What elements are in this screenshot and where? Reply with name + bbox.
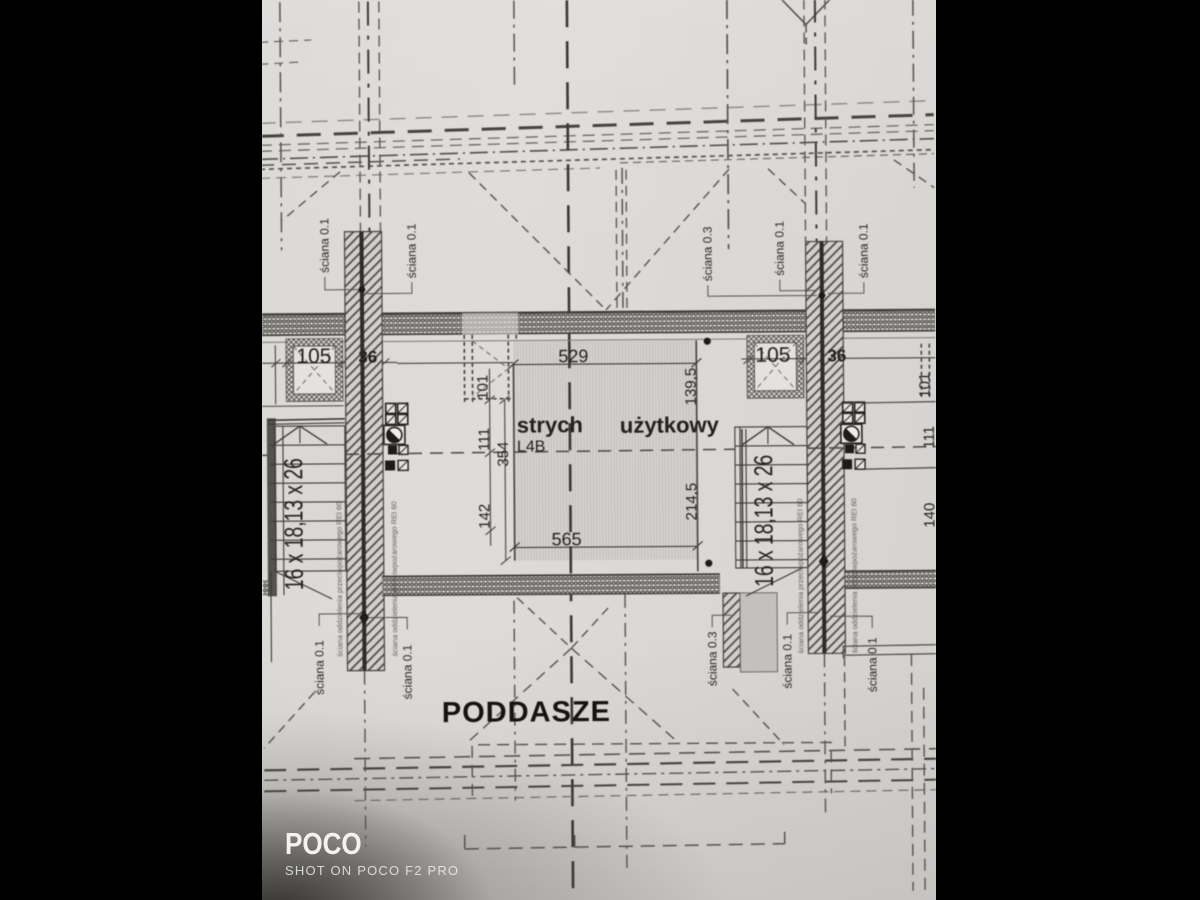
svg-text:565: 565	[552, 529, 582, 549]
svg-text:111: 111	[476, 428, 493, 451]
svg-text:ściana 0.1: ściana 0.1	[856, 223, 870, 278]
svg-text:354: 354	[495, 442, 512, 467]
svg-text:ściana oddzielenia przeciwpoża: ściana oddzielenia przeciwpożarowego REI…	[849, 498, 859, 653]
svg-text:101: 101	[916, 373, 933, 398]
svg-text:ściana 0.3: ściana 0.3	[705, 631, 719, 686]
svg-text:529: 529	[558, 346, 588, 366]
svg-text:użytkowy: użytkowy	[620, 412, 720, 438]
svg-text:36: 36	[827, 346, 846, 365]
svg-text:strych: strych	[517, 412, 583, 437]
svg-text:L4B: L4B	[517, 438, 546, 455]
svg-text:214,5: 214,5	[683, 483, 700, 521]
svg-text:139,5: 139,5	[682, 368, 699, 406]
svg-text:36: 36	[358, 348, 377, 367]
svg-text:PODDASZE: PODDASZE	[442, 696, 611, 729]
svg-text:ściana 0.1: ściana 0.1	[317, 218, 331, 273]
svg-text:105: 105	[296, 345, 331, 368]
svg-text:ściana oddzielenia przeciwpoża: ściana oddzielenia przeciwpożarowego REI…	[334, 502, 344, 657]
svg-text:ściana oddzielenia przeciwpoża: ściana oddzielenia przeciwpożarowego REI…	[389, 501, 399, 656]
svg-text:101: 101	[474, 375, 491, 400]
svg-text:111: 111	[921, 426, 936, 449]
svg-text:ściana 0.1: ściana 0.1	[312, 640, 326, 695]
svg-text:140: 140	[921, 503, 936, 528]
svg-text:142: 142	[476, 504, 493, 529]
svg-text:105: 105	[755, 344, 790, 367]
svg-text:ściana 0.1: ściana 0.1	[780, 634, 794, 689]
svg-text:ściana oddzielenia przeciwpoża: ściana oddzielenia przeciwpożarowego REI…	[795, 498, 805, 653]
svg-text:ściana 0.1: ściana 0.1	[865, 637, 879, 692]
svg-text:ściana 0.1: ściana 0.1	[400, 644, 414, 699]
svg-text:ściana 0.1: ściana 0.1	[772, 221, 786, 276]
svg-text:ściana 0.3: ściana 0.3	[700, 226, 714, 281]
svg-text:16 x 18,13 x 26: 16 x 18,13 x 26	[748, 455, 779, 587]
svg-text:ściana 0.1: ściana 0.1	[404, 223, 418, 278]
svg-text:16 x 18,13 x 26: 16 x 18,13 x 26	[278, 458, 309, 590]
